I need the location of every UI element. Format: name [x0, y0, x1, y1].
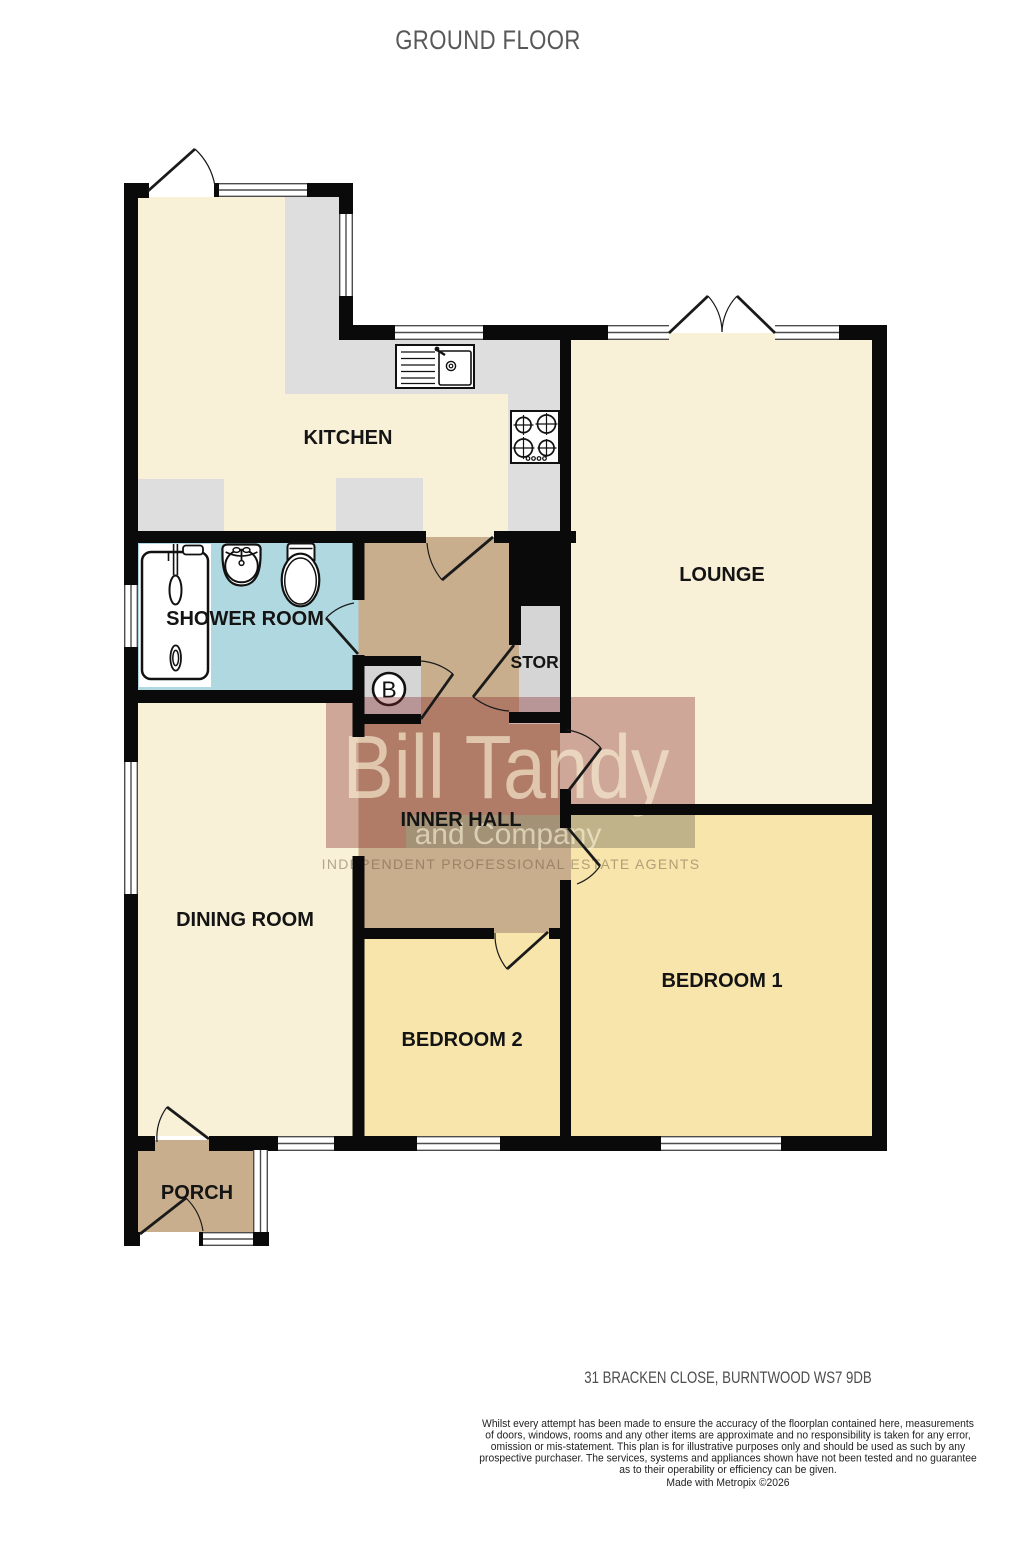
svg-text:Made with Metropix ©2026: Made with Metropix ©2026 — [666, 1477, 789, 1490]
svg-text:as to their operability or eff: as to their operability or efficiency ca… — [619, 1464, 837, 1477]
svg-text:LOUNGE: LOUNGE — [679, 564, 765, 586]
svg-text:INNER HALL: INNER HALL — [400, 809, 521, 831]
svg-text:DINING ROOM: DINING ROOM — [176, 909, 314, 931]
svg-text:PORCH: PORCH — [161, 1182, 233, 1204]
svg-text:31 BRACKEN CLOSE, BURNTWOOD WS: 31 BRACKEN CLOSE, BURNTWOOD WS7 9DB — [584, 1369, 871, 1388]
svg-text:Bill Tandy: Bill Tandy — [343, 716, 670, 817]
svg-text:BEDROOM 1: BEDROOM 1 — [661, 970, 782, 992]
svg-text:KITCHEN: KITCHEN — [304, 427, 393, 449]
svg-text:SHOWER ROOM: SHOWER ROOM — [166, 608, 324, 630]
svg-text:BEDROOM 2: BEDROOM 2 — [401, 1029, 522, 1051]
svg-text:INDEPENDENT PROFESSIONAL ESTAT: INDEPENDENT PROFESSIONAL ESTATE AGENTS — [322, 856, 701, 872]
svg-text:GROUND FLOOR: GROUND FLOOR — [395, 26, 581, 56]
